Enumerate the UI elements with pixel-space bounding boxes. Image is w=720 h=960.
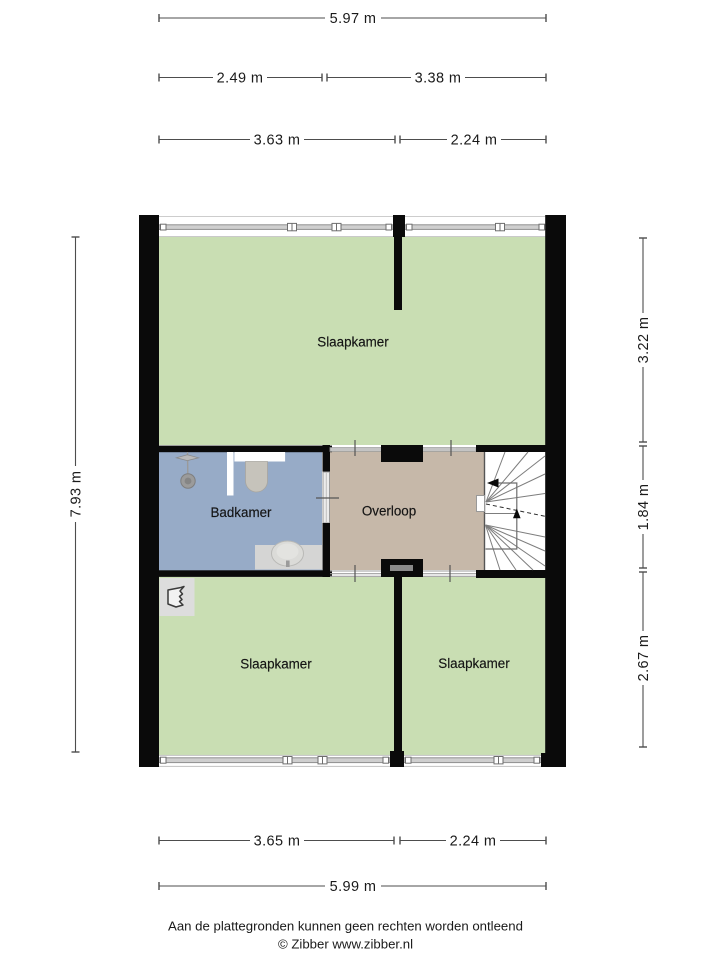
svg-text:2.24 m: 2.24 m xyxy=(451,133,498,149)
svg-text:Slaapkamer: Slaapkamer xyxy=(438,656,510,671)
svg-text:5.99 m: 5.99 m xyxy=(330,879,377,895)
svg-text:Slaapkamer: Slaapkamer xyxy=(240,657,312,672)
svg-text:1.84 m: 1.84 m xyxy=(636,484,652,531)
svg-text:3.38 m: 3.38 m xyxy=(415,71,462,87)
svg-text:2.24 m: 2.24 m xyxy=(450,834,497,850)
svg-text:Aan de plattegronden kunnen ge: Aan de plattegronden kunnen geen rechten… xyxy=(168,919,523,934)
svg-text:3.63 m: 3.63 m xyxy=(254,133,301,149)
svg-text:3.65 m: 3.65 m xyxy=(254,834,301,850)
svg-text:5.97 m: 5.97 m xyxy=(330,11,377,27)
svg-text:Slaapkamer: Slaapkamer xyxy=(317,335,389,350)
svg-text:Overloop: Overloop xyxy=(362,504,416,519)
svg-text:3.22 m: 3.22 m xyxy=(636,317,652,364)
svg-text:© Zibber www.zibber.nl: © Zibber www.zibber.nl xyxy=(278,937,413,952)
svg-text:2.67 m: 2.67 m xyxy=(636,635,652,682)
svg-text:2.49 m: 2.49 m xyxy=(217,71,264,87)
svg-text:7.93 m: 7.93 m xyxy=(69,471,85,518)
svg-text:Badkamer: Badkamer xyxy=(210,505,272,520)
